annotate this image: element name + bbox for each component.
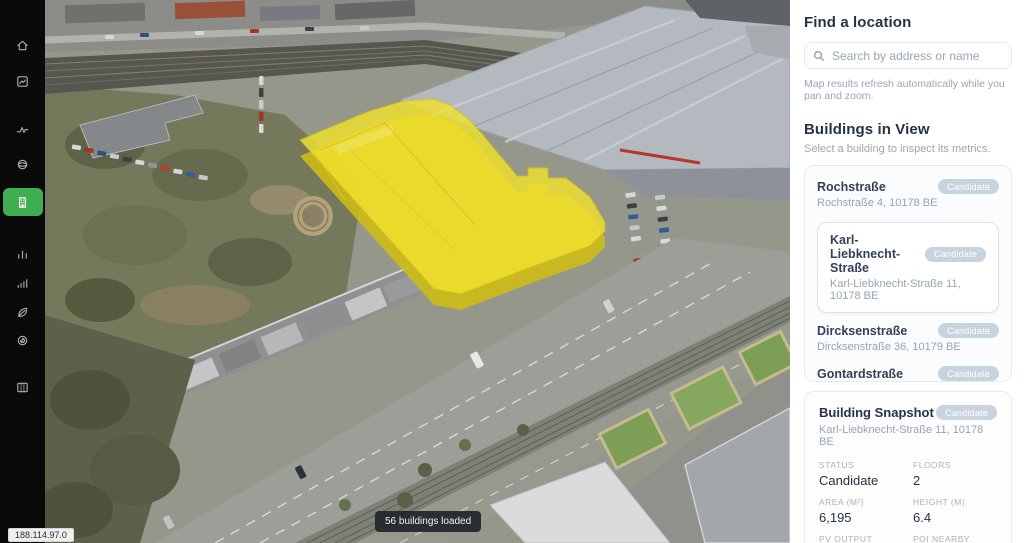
buildings-in-view-subtitle: Select a building to inspect its metrics…	[804, 143, 1012, 155]
metric-area: Area (m²) 6,195	[819, 497, 903, 525]
trend-chart-icon[interactable]	[0, 118, 45, 140]
map-image-icon[interactable]	[0, 70, 45, 92]
globe-layers-icon[interactable]	[0, 153, 45, 175]
right-panel: Find a location Map results refresh auto…	[790, 0, 1024, 543]
aerial-imagery	[45, 0, 790, 543]
building-name: Dircksenstraße	[817, 324, 907, 338]
leaf-icon[interactable]	[0, 301, 45, 323]
buildings-list: Rochstraße Candidate Rochstraße 4, 10178…	[804, 165, 1012, 382]
metric-label: PV Output	[819, 534, 903, 543]
building-snapshot-card: Building Snapshot Candidate Karl-Liebkne…	[804, 391, 1012, 543]
left-sidebar	[0, 0, 45, 543]
ip-address-tooltip: 188.114.97.0	[8, 528, 74, 542]
metric-value: Candidate	[819, 473, 903, 488]
metric-label: Status	[819, 460, 903, 470]
metric-height: Height (m) 6.4	[913, 497, 997, 525]
metric-poi-nearby: POI Nearby 27	[913, 534, 997, 543]
buildings-in-view-title: Buildings in View	[804, 121, 1012, 138]
building-name: Karl-Liebknecht-Straße	[830, 233, 925, 275]
building-list-item-selected[interactable]: Karl-Liebknecht-Straße Candidate Karl-Li…	[817, 222, 999, 313]
snapshot-metrics-grid: Status Candidate Floors 2 Area (m²) 6,19…	[819, 460, 997, 543]
status-badge: Candidate	[936, 405, 997, 420]
building-address: Dircksenstraße 36, 10179 BE	[817, 341, 999, 353]
buildings-loaded-toast: 56 buildings loaded	[375, 511, 481, 532]
building-name: Rochstraße	[817, 180, 886, 194]
find-location-title: Find a location	[804, 14, 1012, 31]
building-address: Karl-Liebknecht-Straße 11, 10178 BE	[830, 278, 986, 302]
status-badge: Candidate	[938, 323, 999, 338]
building-address: Rochstraße 4, 10178 BE	[817, 197, 999, 209]
metric-pv-output: PV Output 1,057	[819, 534, 903, 543]
signal-bars-icon[interactable]	[0, 272, 45, 294]
metric-value: 6,195	[819, 510, 903, 525]
building-name: Gontardstraße	[817, 367, 903, 381]
metric-floors: Floors 2	[913, 460, 997, 488]
search-helper-text: Map results refresh automatically while …	[804, 78, 1012, 102]
map-canvas[interactable]: 56 buildings loaded	[45, 0, 790, 543]
metric-label: POI Nearby	[913, 534, 997, 543]
status-badge: Candidate	[925, 247, 986, 262]
metric-label: Height (m)	[913, 497, 997, 507]
bar-chart-icon[interactable]	[0, 243, 45, 265]
co2-globe-icon[interactable]	[0, 329, 45, 351]
status-badge: Candidate	[938, 179, 999, 194]
map-frame-icon[interactable]	[0, 376, 45, 398]
status-badge: Candidate	[938, 366, 999, 381]
metric-value: 2	[913, 473, 997, 488]
app-window: D 188.114.97.0	[0, 0, 1024, 543]
search-field-wrap	[804, 42, 1012, 69]
metric-value: 6.4	[913, 510, 997, 525]
metric-label: Area (m²)	[819, 497, 903, 507]
home-icon[interactable]	[0, 34, 45, 56]
building-list-item[interactable]: Rochstraße Candidate Rochstraße 4, 10178…	[817, 179, 999, 209]
sidebar-item-buildings-active[interactable]	[3, 188, 43, 216]
building-list-item[interactable]: Dircksenstraße Candidate Dircksenstraße …	[817, 323, 999, 353]
search-icon	[813, 49, 825, 61]
snapshot-address: Karl-Liebknecht-Straße 11, 10178 BE	[819, 424, 997, 448]
metric-status: Status Candidate	[819, 460, 903, 488]
snapshot-title: Building Snapshot	[819, 405, 934, 420]
metric-label: Floors	[913, 460, 997, 470]
building-list-item[interactable]: Gontardstraße Candidate Gontardstraße 7,…	[817, 366, 999, 382]
search-input[interactable]	[804, 42, 1012, 69]
